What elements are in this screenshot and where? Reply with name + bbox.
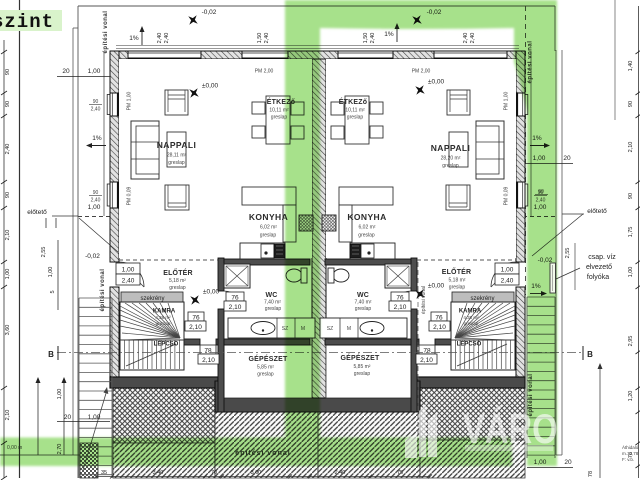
svg-text:PM 2,00: PM 2,00 <box>412 69 431 75</box>
svg-text:90: 90 <box>5 101 11 107</box>
svg-text:90: 90 <box>93 99 99 105</box>
svg-text:2,10: 2,10 <box>420 357 433 364</box>
svg-text:2,40: 2,40 <box>501 278 514 285</box>
svg-text:PM 0,09: PM 0,09 <box>504 186 510 205</box>
svg-text:1,00: 1,00 <box>88 68 101 75</box>
svg-text:greslap: greslap <box>169 285 186 291</box>
svg-text:WC: WC <box>357 292 369 299</box>
svg-text:2,10: 2,10 <box>229 304 242 311</box>
svg-text:ELŐTÉR: ELŐTÉR <box>442 267 472 276</box>
svg-text:WC: WC <box>265 292 277 299</box>
svg-text:GÉPÉSZET: GÉPÉSZET <box>341 353 380 362</box>
svg-text:2,40: 2,40 <box>463 33 469 44</box>
svg-text:PM 0,09: PM 0,09 <box>127 186 133 205</box>
svg-text:76: 76 <box>435 315 443 322</box>
svg-text:greslap: greslap <box>260 233 277 239</box>
svg-text:2,10: 2,10 <box>628 142 634 153</box>
svg-text:folyóka: folyóka <box>587 274 609 281</box>
svg-text:2,40: 2,40 <box>5 144 11 155</box>
svg-text:greslap: greslap <box>354 371 371 377</box>
svg-text:1,00: 1,00 <box>57 389 63 400</box>
svg-text:KONYHA: KONYHA <box>249 212 288 222</box>
svg-text:NAPPALI: NAPPALI <box>157 140 196 150</box>
svg-text:KAMRA: KAMRA <box>153 309 176 315</box>
svg-text:4,38 m²: 4,38 m² <box>463 315 479 320</box>
svg-text:76: 76 <box>231 295 239 302</box>
svg-text:2,40: 2,40 <box>157 33 163 44</box>
svg-text:20: 20 <box>564 459 572 466</box>
svg-text:76: 76 <box>396 295 404 302</box>
svg-text:GÉPÉSZET: GÉPÉSZET <box>249 354 288 363</box>
svg-text:greslap: greslap <box>156 321 171 326</box>
svg-text:2,40: 2,40 <box>370 33 376 44</box>
svg-text:1,00: 1,00 <box>501 267 514 274</box>
svg-text:2,40: 2,40 <box>122 278 135 285</box>
svg-text:greslap: greslap <box>449 285 466 291</box>
svg-text:6,02 m²: 6,02 m² <box>260 225 277 231</box>
svg-text:2,10: 2,10 <box>189 324 202 331</box>
svg-text:1,20: 1,20 <box>628 391 634 402</box>
svg-text:B: B <box>48 350 54 359</box>
svg-text:2,10: 2,10 <box>202 357 215 364</box>
svg-text:28,11 m²: 28,11 m² <box>167 153 187 159</box>
svg-text:2,10: 2,10 <box>5 410 11 421</box>
svg-text:greslap: greslap <box>355 306 372 312</box>
svg-text:78: 78 <box>204 348 212 355</box>
svg-text:1,75: 1,75 <box>628 227 634 238</box>
svg-text:20: 20 <box>563 155 571 162</box>
svg-text:-0,02: -0,02 <box>85 253 100 260</box>
svg-text:PM 1,00: PM 1,00 <box>127 91 133 110</box>
svg-text:2,95: 2,95 <box>628 336 634 347</box>
svg-text:90: 90 <box>5 69 11 75</box>
svg-text:75: 75 <box>397 470 403 476</box>
svg-text:7,40 m²: 7,40 m² <box>264 300 281 306</box>
svg-text:PM 2,00: PM 2,00 <box>255 69 274 75</box>
svg-text:35: 35 <box>101 470 107 476</box>
svg-text:1,00: 1,00 <box>628 267 634 278</box>
svg-text:5,18 m²: 5,18 m² <box>449 278 466 284</box>
svg-text:F: v.b.: F: v.b. <box>622 457 634 462</box>
svg-text:m.: 2,78: m.: 2,78 <box>622 451 639 456</box>
svg-text:4,38 m²: 4,38 m² <box>155 315 171 320</box>
svg-text:1,00: 1,00 <box>88 414 101 421</box>
svg-text:76: 76 <box>192 315 200 322</box>
svg-text:előtető: előtető <box>27 209 47 216</box>
svg-text:2,40: 2,40 <box>91 198 101 204</box>
svg-text:szekrény: szekrény <box>470 296 494 302</box>
svg-text:M: M <box>347 326 351 332</box>
svg-text:6,02 m²: 6,02 m² <box>359 225 376 231</box>
svg-text:1%: 1% <box>92 135 102 142</box>
svg-text:greslap: greslap <box>168 160 185 166</box>
svg-text:5,85 m²: 5,85 m² <box>257 365 274 371</box>
svg-text:90: 90 <box>628 193 634 199</box>
svg-text:5,85 m²: 5,85 m² <box>354 364 371 370</box>
svg-text:Áthidaló: Áthidaló <box>622 444 639 450</box>
svg-text:greslap: greslap <box>464 321 479 326</box>
svg-text:20: 20 <box>62 68 70 75</box>
svg-text:ÉTKEZő: ÉTKEZő <box>339 97 367 106</box>
svg-text:1,00: 1,00 <box>88 204 101 211</box>
svg-text:2,40: 2,40 <box>264 33 270 44</box>
svg-text:7,40 m²: 7,40 m² <box>355 300 372 306</box>
svg-text:KAMRA: KAMRA <box>459 309 482 315</box>
svg-text:2,40: 2,40 <box>91 107 101 113</box>
svg-text:2,55: 2,55 <box>41 247 47 258</box>
svg-text:B: B <box>587 350 593 359</box>
svg-text:előtető: előtető <box>587 208 607 215</box>
svg-text:20: 20 <box>64 414 72 421</box>
svg-text:szekrény: szekrény <box>140 296 164 302</box>
svg-text:greslap: greslap <box>442 163 459 169</box>
svg-text:2,10: 2,10 <box>5 230 11 241</box>
svg-text:KONYHA: KONYHA <box>347 212 386 222</box>
svg-text:1%: 1% <box>384 31 394 38</box>
svg-text:szint: szint <box>0 11 54 33</box>
svg-text:3,40: 3,40 <box>153 470 164 476</box>
svg-text:70: 70 <box>211 470 217 476</box>
svg-text:greslap: greslap <box>271 115 288 121</box>
svg-text:1,40: 1,40 <box>628 61 634 72</box>
svg-text:1,00: 1,00 <box>48 267 54 278</box>
svg-text:greslap: greslap <box>347 115 364 121</box>
svg-text:5,18 m²: 5,18 m² <box>169 278 186 284</box>
svg-text:5: 5 <box>50 290 56 293</box>
svg-text:építési vonal: építési vonal <box>103 11 109 54</box>
svg-text:2,40: 2,40 <box>470 33 476 44</box>
svg-text:LÉPCSŐ: LÉPCSŐ <box>457 340 482 348</box>
svg-text:SZ: SZ <box>327 326 333 332</box>
svg-text:28,20 m²: 28,20 m² <box>441 156 461 162</box>
svg-text:építési vonal: építési vonal <box>421 286 427 314</box>
svg-text:90: 90 <box>5 192 11 198</box>
svg-text:ELŐTÉR: ELŐTÉR <box>163 268 193 277</box>
svg-text:78: 78 <box>588 471 594 477</box>
svg-text:2,10: 2,10 <box>433 324 446 331</box>
svg-text:±0,00: ±0,00 <box>428 283 445 290</box>
svg-text:elvezető: elvezető <box>586 264 612 271</box>
svg-text:NAPPALI: NAPPALI <box>431 143 470 153</box>
svg-text:2,55: 2,55 <box>565 248 571 259</box>
svg-text:90: 90 <box>93 190 99 196</box>
svg-text:greslap: greslap <box>265 306 282 312</box>
svg-text:2,40: 2,40 <box>335 470 346 476</box>
svg-text:greslap: greslap <box>257 372 274 378</box>
svg-text:1%: 1% <box>129 35 139 42</box>
svg-text:2,10: 2,10 <box>394 304 407 311</box>
svg-text:±0,00: ±0,00 <box>202 83 219 90</box>
svg-text:csap. víz: csap. víz <box>588 254 616 261</box>
svg-text:78: 78 <box>423 348 431 355</box>
svg-text:2,40: 2,40 <box>164 33 170 44</box>
svg-text:1,50: 1,50 <box>363 33 369 44</box>
svg-text:1,00: 1,00 <box>122 267 135 274</box>
svg-text:±0,00: ±0,00 <box>428 79 445 86</box>
svg-text:-0,02: -0,02 <box>202 9 217 16</box>
svg-text:LÉPCSŐ: LÉPCSŐ <box>154 340 179 348</box>
svg-text:VÁRO: VÁRO <box>463 405 558 452</box>
svg-text:10,11 m²: 10,11 m² <box>345 108 365 114</box>
svg-text:3,60: 3,60 <box>5 325 11 336</box>
svg-text:építési vonal: építési vonal <box>100 269 106 312</box>
svg-text:1,00: 1,00 <box>5 269 11 280</box>
svg-text:±0,00: ±0,00 <box>203 289 220 296</box>
svg-text:PM 1,00: PM 1,00 <box>504 91 510 110</box>
svg-text:1,50: 1,50 <box>257 33 263 44</box>
svg-text:90: 90 <box>628 101 634 107</box>
svg-text:3,00: 3,00 <box>251 470 262 476</box>
svg-text:greslap: greslap <box>358 233 375 239</box>
